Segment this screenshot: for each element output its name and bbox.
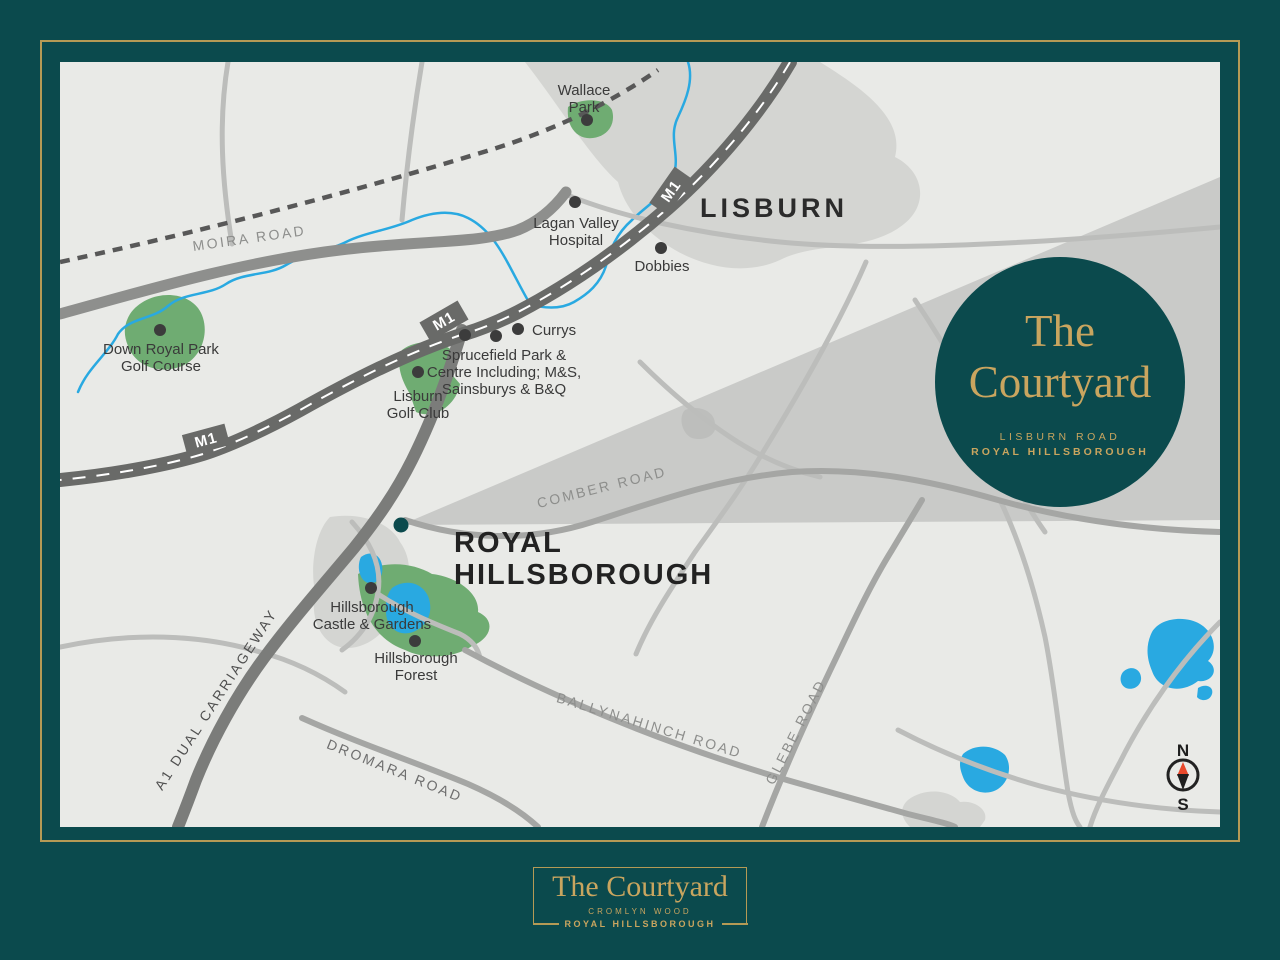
footer-logo-location: ROYAL HILLSBOROUGH [565, 919, 716, 929]
badge-title-line: Courtyard [969, 357, 1151, 407]
currys-dot [512, 323, 524, 335]
dobbies-dot [655, 242, 667, 254]
currys-label: Currys [532, 322, 576, 339]
lake-east-small [1121, 668, 1141, 689]
badge-address-line: LISBURN ROAD [1000, 431, 1121, 443]
down-royal-label: Golf Course [121, 358, 201, 375]
poster-background: Wallace Park Lagan Valley Hospital Dobbi… [0, 0, 1280, 960]
castle-dot [365, 582, 377, 594]
compass-needle-south [1177, 774, 1189, 790]
dromara-road-label: DROMARA ROAD [325, 736, 466, 805]
lake-east-tiny [1197, 686, 1212, 700]
forest-label: Forest [395, 667, 438, 684]
lake-east-large [1148, 619, 1214, 689]
wallace-park-label: Park [569, 99, 600, 116]
lisburn-golf-dot [412, 366, 424, 378]
lagan-valley-hospital-label: Hospital [549, 232, 603, 249]
castle-gardens-label: Hillsborough [330, 599, 413, 616]
retail-dot-2 [490, 330, 502, 342]
lisburn-golf-club-label: Lisburn [393, 388, 442, 405]
ballynahinch-road-label: BALLYNAHINCH ROAD [555, 689, 744, 761]
royal-hillsborough-label: HILLSBOROUGH [454, 559, 713, 591]
compass-south-label: S [1177, 795, 1188, 814]
lisburn-town-label: LISBURN [700, 193, 848, 223]
sprucefield-label: Sainsburys & B&Q [442, 381, 566, 398]
compass: N S [1168, 741, 1198, 814]
forest-dot [409, 635, 421, 647]
royal-hillsborough-label: ROYAL [454, 527, 563, 559]
badge-address-line: ROYAL HILLSBOROUGH [971, 446, 1149, 458]
compass-north-label: N [1177, 741, 1189, 760]
dobbies-label: Dobbies [634, 258, 689, 275]
courtyard-badge: The Courtyard LISBURN ROAD ROYAL HILLSBO… [935, 257, 1185, 507]
forest-label: Hillsborough [374, 650, 457, 667]
moira-road [60, 192, 566, 314]
courtyard-site-dot [394, 518, 409, 533]
lagan-valley-hospital-dot [569, 196, 581, 208]
down-royal-dot [154, 324, 166, 336]
footer-rule-left [533, 923, 559, 925]
footer-logo-title: The Courtyard [534, 872, 746, 902]
glebe-road-label: GLEBE ROAD [762, 676, 829, 787]
castle-gardens-label: Castle & Gardens [313, 616, 431, 633]
footer-logo-estate: CROMLYN WOOD [534, 907, 746, 916]
down-royal-label: Down Royal Park [103, 341, 219, 358]
sprucefield-label: Sprucefield Park & [442, 347, 566, 364]
footer-rule-right [722, 923, 748, 925]
badge-title-line: The [1025, 306, 1095, 356]
footer-logo-location-row: ROYAL HILLSBOROUGH [533, 919, 748, 929]
retail-dot-1 [459, 329, 471, 341]
compass-needle-north [1177, 762, 1189, 776]
lisburn-golf-club-label: Golf Club [387, 405, 450, 422]
sprucefield-label: Centre Including; M&S, [427, 364, 581, 381]
footer-logo: The Courtyard CROMLYN WOOD ROYAL HILLSBO… [533, 867, 747, 924]
wallace-park-label: Wallace [558, 82, 611, 99]
a1-road-label: A1 DUAL CARRIAGEWAY [151, 606, 280, 793]
lagan-valley-hospital-label: Lagan Valley [533, 215, 619, 232]
